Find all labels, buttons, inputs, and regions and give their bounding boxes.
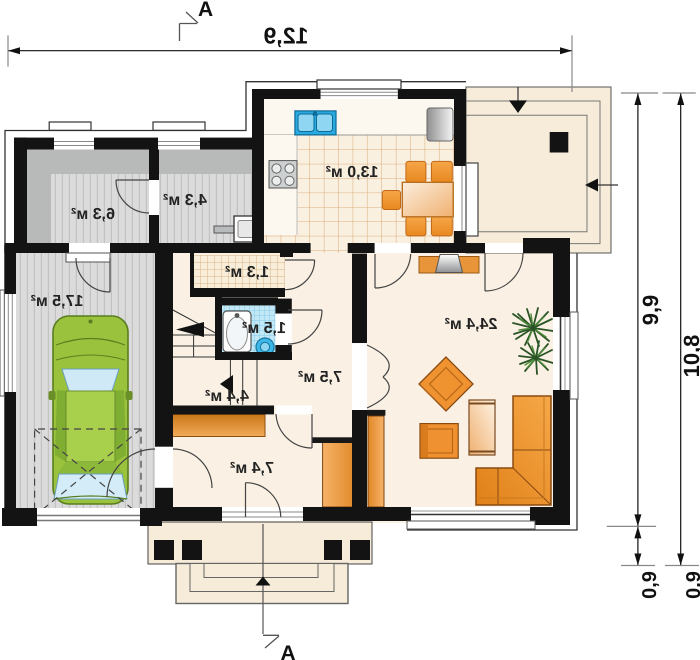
svg-text:12,9: 12,9 (264, 23, 309, 49)
svg-text:7,5 м²: 7,5 м² (298, 369, 342, 386)
svg-text:A: A (280, 642, 295, 660)
svg-text:1,5 м²: 1,5 м² (242, 320, 286, 337)
svg-text:0,9: 0,9 (683, 571, 700, 599)
svg-text:9,9: 9,9 (638, 295, 663, 326)
svg-text:7,4 м²: 7,4 м² (230, 460, 274, 477)
svg-text:10,8: 10,8 (679, 335, 700, 378)
svg-text:13,0 м²: 13,0 м² (326, 164, 379, 181)
svg-text:17,5 м²: 17,5 м² (31, 293, 84, 310)
svg-text:4,4 м²: 4,4 м² (205, 388, 249, 405)
svg-text:0,9: 0,9 (639, 571, 661, 599)
svg-text:1,3 м²: 1,3 м² (225, 264, 269, 281)
svg-text:4,3 м²: 4,3 м² (163, 192, 207, 209)
svg-text:A: A (198, 0, 213, 21)
svg-text:6,3 м²: 6,3 м² (71, 206, 115, 223)
svg-text:24,4 м²: 24,4 м² (445, 316, 498, 333)
